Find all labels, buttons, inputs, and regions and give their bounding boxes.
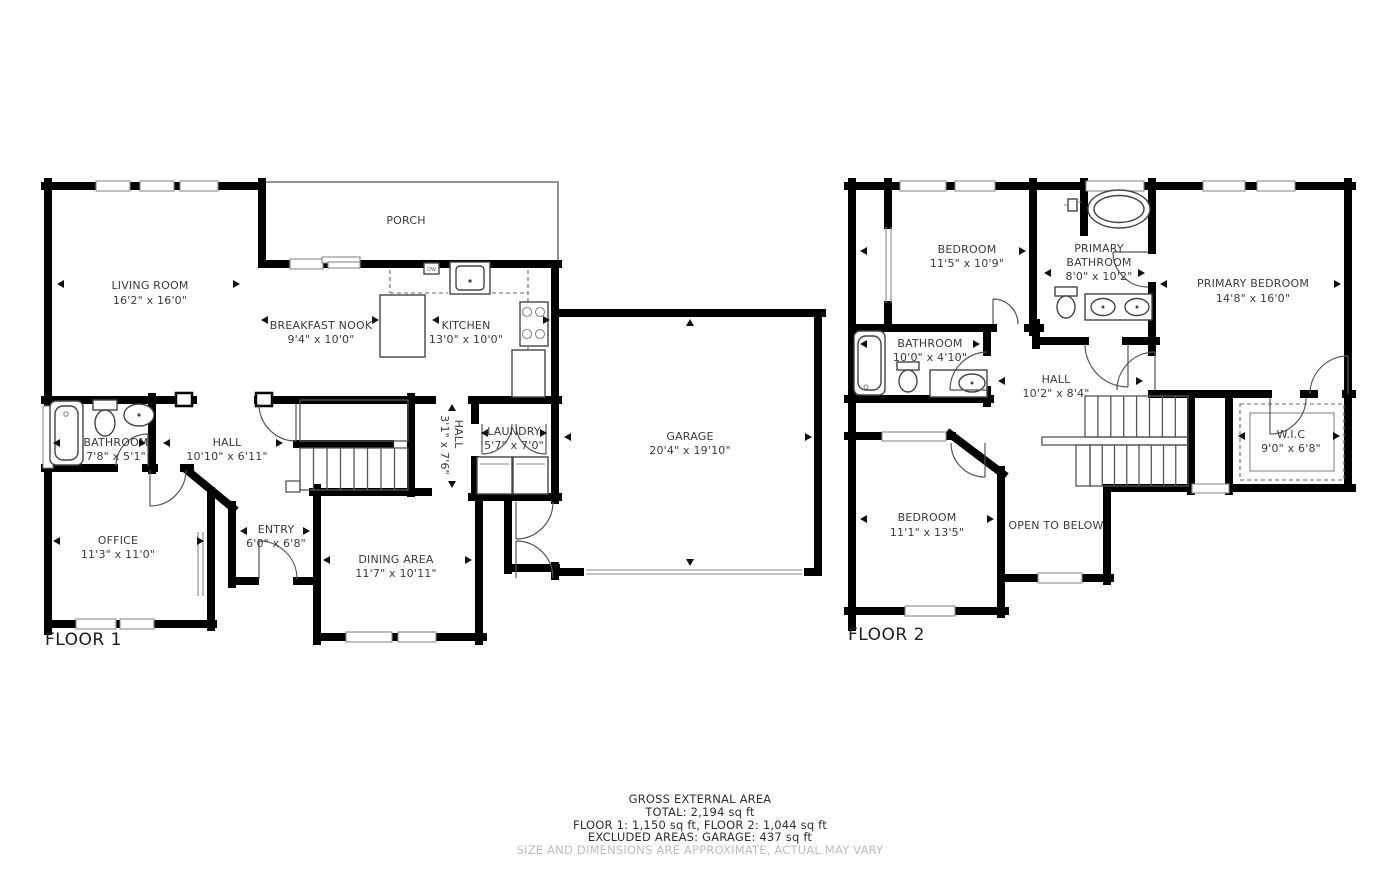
floor1-plan: DW: [43, 181, 822, 650]
hall-door: [259, 404, 296, 441]
sink-drain: [468, 279, 471, 282]
window: [120, 619, 154, 629]
dimension-arrow: [448, 481, 456, 488]
dimension-arrow: [973, 340, 980, 348]
kitchen-dims: 13'0" x 10'0": [429, 333, 503, 346]
excluded-areas: EXCLUDED AREAS: GARAGE: 437 sq ft: [588, 830, 813, 844]
entry-dims: 6'0" x 6'8": [246, 537, 306, 550]
wic-label: W.I.C: [1277, 428, 1306, 441]
window: [1203, 181, 1245, 191]
kitchen-counter: [512, 350, 545, 397]
dimension-arrow: [432, 316, 439, 324]
primary-bedroom-closet-door: [1310, 356, 1348, 394]
sink-drain: [1102, 306, 1105, 309]
dimension-arrow: [1160, 280, 1167, 288]
dimension-arrow: [1136, 377, 1143, 385]
stair-step-edge: [1076, 445, 1090, 486]
breakfast-nook-label: BREAKFAST NOOK: [270, 319, 373, 332]
office-dims: 11'3" x 11'0": [81, 548, 155, 561]
garage-dims: 20'4" x 19'10": [649, 444, 730, 457]
stair-landing: [300, 400, 408, 441]
floor-plan-canvas: DW: [0, 0, 1400, 874]
window: [180, 181, 218, 191]
breakfast-nook-dims: 9'4" x 10'0": [287, 333, 354, 346]
window: [76, 619, 116, 629]
stair-step-edge: [286, 481, 300, 492]
window: [96, 181, 130, 191]
open-to-below-label: OPEN TO BELOW: [1008, 519, 1103, 532]
toilet-bowl: [95, 410, 115, 436]
dimension-arrow: [860, 247, 867, 255]
dimension-arrow: [57, 280, 64, 288]
bedroom1-dims: 11'5" x 10'9": [930, 257, 1004, 270]
office-door: [150, 470, 186, 506]
dining-area-dims: 11'7" x 10'11": [355, 567, 436, 580]
garage-label: GARAGE: [666, 430, 713, 443]
laundry-fixtures: [477, 457, 548, 494]
dimension-arrow: [686, 559, 694, 566]
dimension-arrow: [448, 404, 456, 411]
dimension-arrow: [1019, 247, 1026, 255]
dimension-arrow: [323, 556, 330, 564]
garage-door-opening: [584, 565, 804, 578]
dimension-arrow: [372, 316, 379, 324]
gross-area-title: GROSS EXTERNAL AREA: [629, 792, 772, 806]
primary-bathroom-label-2: BATHROOM: [1066, 256, 1131, 269]
porch-label: PORCH: [386, 214, 425, 227]
hall-floor2-dims: 10'2" x 8'4": [1022, 387, 1089, 400]
floor2-title: FLOOR 2: [848, 625, 925, 645]
sink-drain: [971, 382, 974, 385]
window: [346, 632, 392, 642]
hall2-label: HALL: [452, 420, 465, 450]
entry-label: ENTRY: [258, 523, 295, 536]
floor2-plan: BEDROOM 11'5" x 10'9" PRIMARY BATHROOM 8…: [848, 181, 1352, 645]
window: [290, 259, 323, 269]
sliding-door: [328, 262, 360, 268]
disclaimer: SIZE AND DIMENSIONS ARE APPROXIMATE, ACT…: [517, 843, 884, 857]
dining-area-label: DINING AREA: [358, 553, 434, 566]
primary-bathroom-dims: 8'0" x 10'2": [1065, 270, 1132, 283]
dimension-arrow: [686, 319, 694, 326]
area-summary: GROSS EXTERNAL AREA TOTAL: 2,194 sq ft F…: [517, 792, 884, 857]
primary-bathroom-label-1: PRIMARY: [1074, 242, 1124, 255]
dimension-arrow: [303, 527, 310, 535]
primary-bedroom-dims: 14'8" x 16'0": [1216, 292, 1290, 305]
window: [882, 432, 946, 441]
garage-entry-door-lower: [516, 541, 553, 578]
toilet-tank: [1055, 287, 1077, 296]
bathtub-basin: [55, 406, 78, 460]
bathroom1-dims: 7'8" x 5'1": [86, 450, 146, 463]
dimension-arrow: [276, 439, 283, 447]
stair-treads: [1098, 396, 1176, 486]
laundry-label: LAUNDRY: [487, 425, 541, 438]
total-area: TOTAL: 2,194 sq ft: [644, 805, 755, 819]
window: [398, 632, 436, 642]
dimension-arrow: [564, 433, 571, 441]
dimension-arrow: [240, 527, 247, 535]
dimension-arrow: [998, 377, 1005, 385]
washer-icon: [477, 457, 512, 494]
bedroom1-label: BEDROOM: [938, 243, 997, 256]
dryer-icon: [513, 457, 548, 494]
bathroom1-label: BATHROOM: [83, 436, 148, 449]
bedroom1-closet: [886, 227, 891, 303]
dimension-arrow: [1138, 269, 1145, 277]
toilet-bowl: [899, 370, 917, 392]
window: [140, 181, 174, 191]
dimension-arrow: [987, 515, 994, 523]
dishwasher-label: DW: [427, 267, 436, 273]
sink-drain: [137, 413, 140, 416]
opening: [1192, 484, 1229, 493]
dimension-arrow: [860, 515, 867, 523]
wic-dims: 9'0" x 6'8": [1261, 442, 1321, 455]
window: [905, 606, 955, 616]
hall1-dims: 10'10" x 6'11": [186, 450, 267, 463]
dimension-arrow: [53, 537, 60, 545]
garage-entry-door-upper: [516, 502, 553, 539]
dimension-arrow: [261, 316, 268, 324]
floor-plan-page: DW: [0, 0, 1400, 874]
sink-drain: [1136, 306, 1139, 309]
dimension-arrow: [163, 439, 170, 447]
bedroom2-dims: 11'1" x 13'5": [890, 526, 964, 539]
dimension-arrow: [805, 433, 812, 441]
primary-bathroom-fixtures: [1055, 190, 1152, 320]
kitchen-counter: [380, 295, 425, 357]
dimension-arrow: [1333, 432, 1340, 440]
hall-floor2-label: HALL: [1042, 373, 1072, 386]
window: [1257, 181, 1295, 191]
soaking-tub-basin: [1094, 196, 1144, 223]
window: [1038, 573, 1082, 583]
primary-bedroom-label: PRIMARY BEDROOM: [1197, 277, 1309, 290]
dimension-arrow: [465, 556, 472, 564]
living-room-dims: 16'2" x 16'0": [113, 294, 187, 307]
bedroom2-label: BEDROOM: [898, 511, 957, 524]
stairs-floor2: [1042, 396, 1188, 486]
toilet-bowl: [1057, 296, 1075, 318]
wall-post: [176, 393, 192, 406]
hall1-label: HALL: [213, 436, 243, 449]
bathroom2-dims: 10'0" x 4'10": [893, 351, 967, 364]
shower-fixture-icon: [1068, 199, 1077, 211]
dimension-arrow: [233, 280, 240, 288]
hall2-dims: 3'1" x 7'6": [438, 415, 451, 475]
laundry-dims: 5'7" x 7'0": [484, 439, 544, 452]
floor1-title: FLOOR 1: [45, 630, 122, 650]
dimension-arrow: [1044, 269, 1051, 277]
window: [955, 181, 995, 191]
stair-rail: [1042, 437, 1188, 445]
primary-bathroom-door: [1085, 344, 1128, 387]
bedroom1-door: [993, 299, 1018, 324]
office-label: OFFICE: [98, 534, 138, 547]
dimension-arrow: [1238, 432, 1245, 440]
kitchen-label: KITCHEN: [441, 319, 490, 332]
dimension-arrow: [1334, 280, 1341, 288]
toilet-tank: [93, 400, 117, 410]
bathroom2-label: BATHROOM: [897, 337, 962, 350]
window: [900, 181, 946, 191]
kitchen-sink-basin: [456, 266, 484, 290]
living-room-label: LIVING ROOM: [111, 279, 188, 292]
stair-treads: [314, 448, 395, 490]
